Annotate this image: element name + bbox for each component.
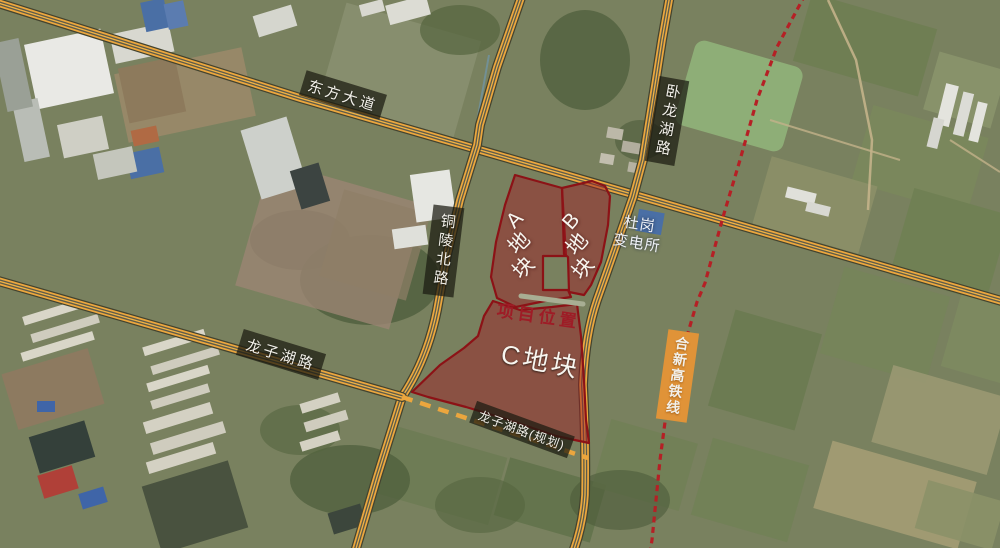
satellite-map: 东方大道 卧龙湖路 铜陵北路 龙子湖路 龙子湖路(规划) 合新高铁线 杜岗 变电… [0,0,1000,548]
poi-label-dugang-substation: 杜岗 变电所 [603,207,673,262]
map-canvas [0,0,1000,548]
